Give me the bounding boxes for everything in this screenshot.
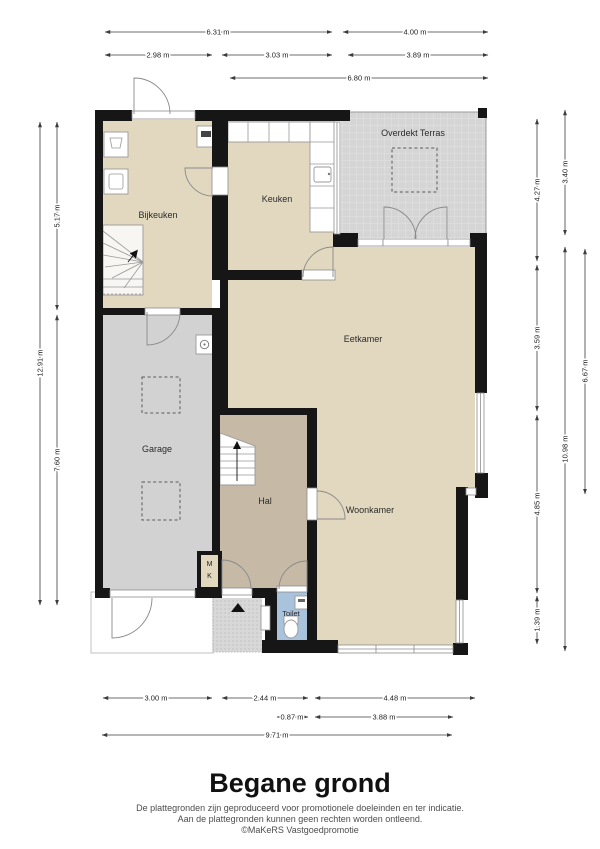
dim-label: 0.87 m [281, 713, 304, 722]
dim-label: 2.98 m [147, 51, 170, 60]
dim-label: 6.80 m [348, 74, 371, 83]
hal-woonkamer-door-opening [307, 488, 317, 520]
dim-label: 12.91 m [36, 349, 45, 376]
bijkeuken-exterior-door-opening [132, 111, 195, 119]
dim-label: 3.00 m [145, 694, 168, 703]
dim-label: 3.40 m [561, 161, 570, 184]
front-door-opening [222, 588, 252, 595]
label-overdekt-terras: Overdekt Terras [381, 128, 445, 138]
toilet-sink-icon [295, 596, 308, 609]
terras-french-door-opening [383, 239, 448, 246]
floorplan-drawing: 6.31 m 4.00 m 2.98 m 3.03 m 3.89 m 6.80 … [0, 0, 600, 849]
dryer-icon [104, 169, 128, 194]
dim-label: 4.27 m [533, 179, 542, 202]
label-meterkast-m: M [207, 561, 213, 568]
page-title: Begane grond [0, 768, 600, 799]
keuken-eetkamer-door-opening [302, 270, 335, 280]
dim-label: 4.48 m [384, 694, 407, 703]
toilet-bowl-icon [284, 616, 298, 638]
outside-areas [91, 592, 262, 653]
dim-label: 9.71 m [266, 731, 289, 740]
disclaimer-line: ©MaKeRS Vastgoedpromotie [0, 825, 600, 836]
dim-label: 2.44 m [254, 694, 277, 703]
bijkeuken-garage-door-opening [145, 308, 180, 315]
dim-label: 10.98 m [561, 435, 570, 462]
dim-label: 5.17 m [53, 205, 62, 228]
dim-label: 4.00 m [404, 28, 427, 37]
disclaimer: De plattegronden zijn geproduceerd voor … [0, 803, 600, 836]
porch-side-window [261, 606, 270, 630]
terras-window-left [358, 239, 383, 246]
garage-door-opening [110, 590, 195, 597]
meter-closet [201, 555, 218, 587]
label-garage: Garage [142, 444, 172, 454]
label-toilet: Toilet [282, 609, 300, 618]
bijkeuken-keuken-door-opening [212, 167, 228, 195]
label-meterkast-k: K [207, 573, 212, 580]
dim-label: 4.85 m [533, 493, 542, 516]
label-hal: Hal [258, 496, 272, 506]
label-eetkamer: Eetkamer [344, 334, 383, 344]
label-woonkamer: Woonkamer [346, 505, 394, 515]
dim-label: 3.89 m [407, 51, 430, 60]
disclaimer-line: Aan de plattegronden kunnen geen rechten… [0, 814, 600, 825]
toilet-door-opening [277, 586, 307, 592]
bijkeuken-exterior-door-swing [134, 78, 170, 114]
floorplan-page: 6.31 m 4.00 m 2.98 m 3.03 m 3.89 m 6.80 … [0, 0, 600, 849]
stairs-bijkeuken [103, 225, 143, 295]
label-keuken: Keuken [262, 194, 293, 204]
label-bijkeuken: Bijkeuken [138, 210, 177, 220]
step-window [466, 488, 476, 495]
dim-label: 7.60 m [53, 449, 62, 472]
dim-label: 3.59 m [533, 327, 542, 350]
dim-label: 6.67 m [581, 360, 590, 383]
disclaimer-line: De plattegronden zijn geproduceerd voor … [0, 803, 600, 814]
dim-label: 6.31 m [207, 28, 230, 37]
dim-label: 3.03 m [266, 51, 289, 60]
dim-label: 3.88 m [373, 713, 396, 722]
dim-label: 1.39 m [533, 609, 542, 632]
terras-window-right [448, 239, 470, 246]
washer-icon [104, 132, 128, 157]
room-woonkamer-upper [317, 415, 475, 490]
